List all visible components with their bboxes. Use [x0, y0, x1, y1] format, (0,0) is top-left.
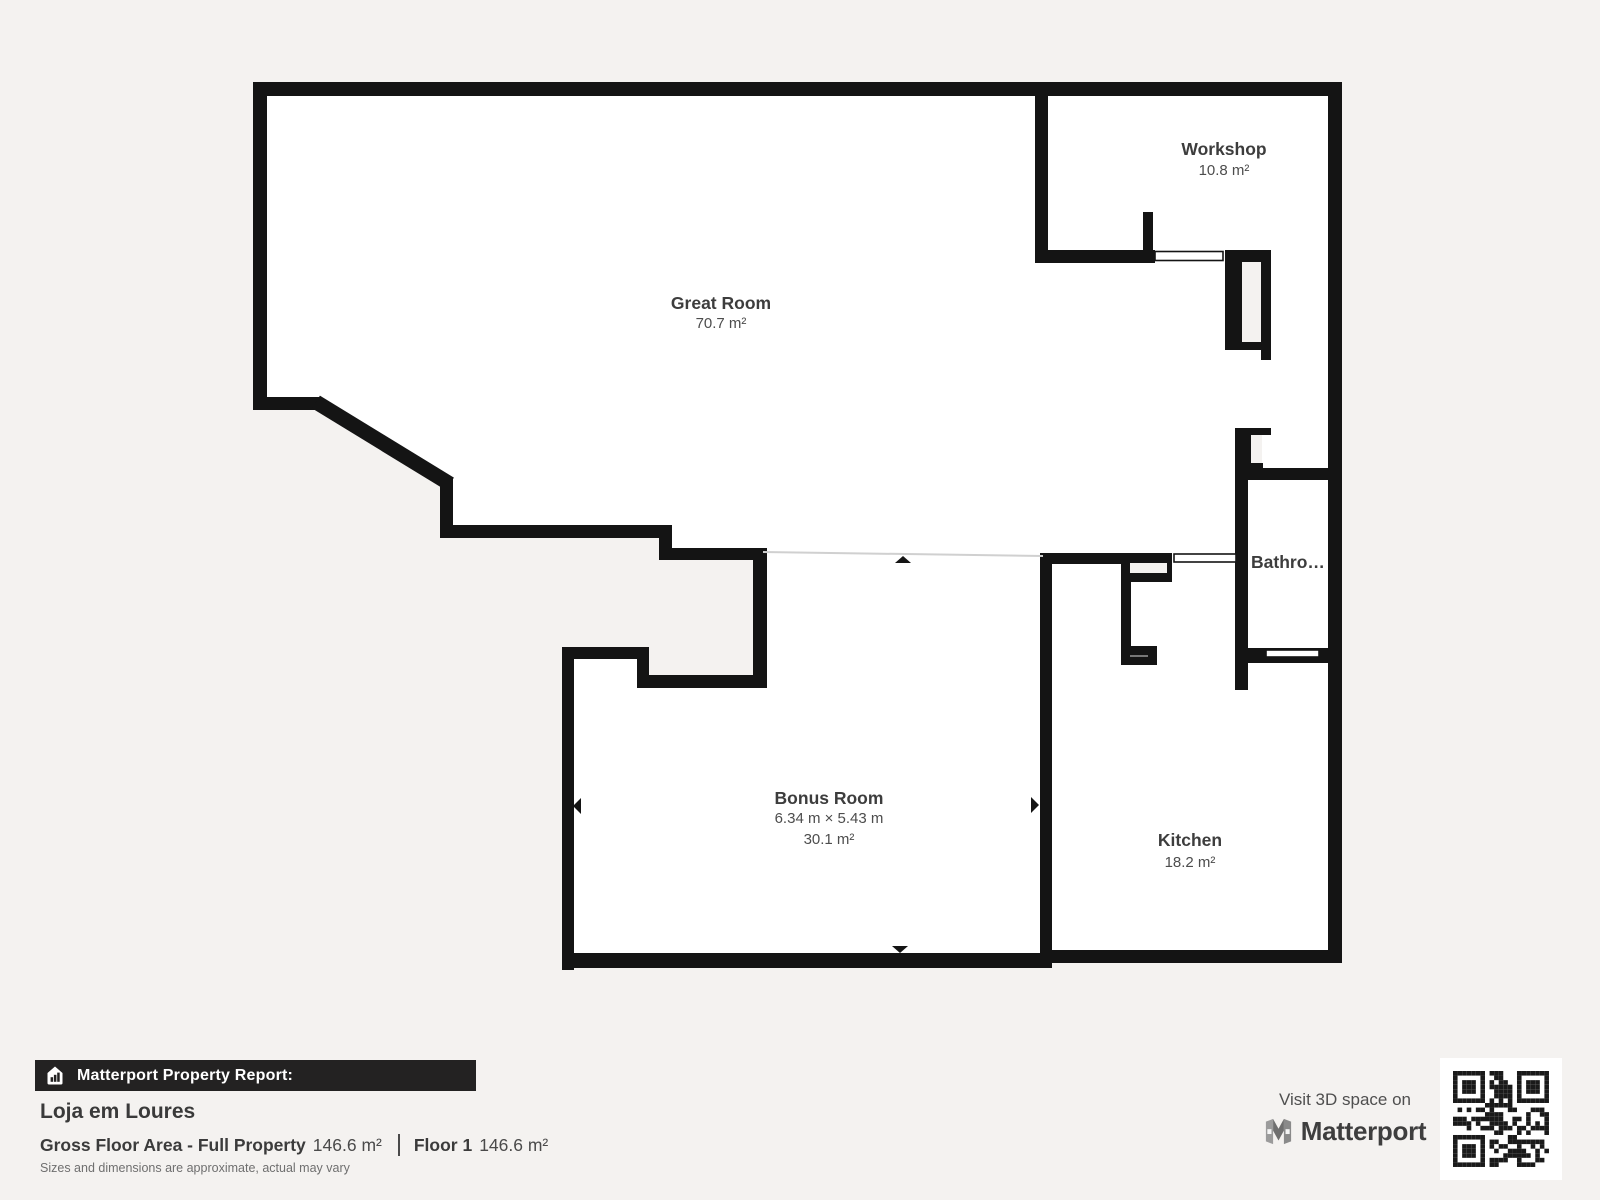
property-name: Loja em Loures — [40, 1100, 195, 1124]
matterport-floorplan-report: Great Room 70.7 m² Workshop 10.8 m² Bath… — [0, 0, 1600, 1200]
svg-text:6.34 m × 5.43 m: 6.34 m × 5.43 m — [775, 810, 884, 827]
banner-title: Matterport Property Report: — [77, 1067, 293, 1085]
svg-text:30.1 m²: 30.1 m² — [804, 831, 855, 848]
floor-value: 146.6 m² — [479, 1135, 548, 1156]
svg-text:70.7 m²: 70.7 m² — [696, 315, 747, 332]
svg-text:18.2 m²: 18.2 m² — [1165, 854, 1216, 871]
svg-text:Bathro…: Bathro… — [1251, 552, 1325, 572]
room-label-bathroom: Bathro… — [1251, 552, 1325, 572]
metrics-divider — [398, 1134, 400, 1156]
svg-text:Bonus Room: Bonus Room — [775, 788, 884, 808]
visit-text: Visit 3D space on — [1230, 1090, 1460, 1110]
floor-metrics: Gross Floor Area - Full Property 146.6 m… — [40, 1134, 548, 1156]
qr-code — [1440, 1058, 1562, 1180]
property-report-icon — [46, 1065, 64, 1086]
svg-text:Great Room: Great Room — [671, 293, 771, 313]
svg-text:10.8 m²: 10.8 m² — [1199, 162, 1250, 179]
floor-plan: Great Room 70.7 m² Workshop 10.8 m² Bath… — [0, 0, 1600, 1010]
disclaimer-text: Sizes and dimensions are approximate, ac… — [40, 1161, 350, 1175]
gross-floor-area-value: 146.6 m² — [313, 1135, 382, 1156]
matterport-logo-icon — [1264, 1118, 1293, 1145]
svg-text:Kitchen: Kitchen — [1158, 830, 1222, 850]
report-banner: Matterport Property Report: — [35, 1060, 476, 1091]
gross-floor-area-label: Gross Floor Area - Full Property — [40, 1135, 306, 1156]
visit-3d-promo: Visit 3D space on Matterport — [1230, 1090, 1460, 1147]
floor-label: Floor 1 — [414, 1135, 472, 1156]
matterport-wordmark: Matterport — [1301, 1116, 1427, 1147]
svg-text:Workshop: Workshop — [1181, 139, 1266, 159]
